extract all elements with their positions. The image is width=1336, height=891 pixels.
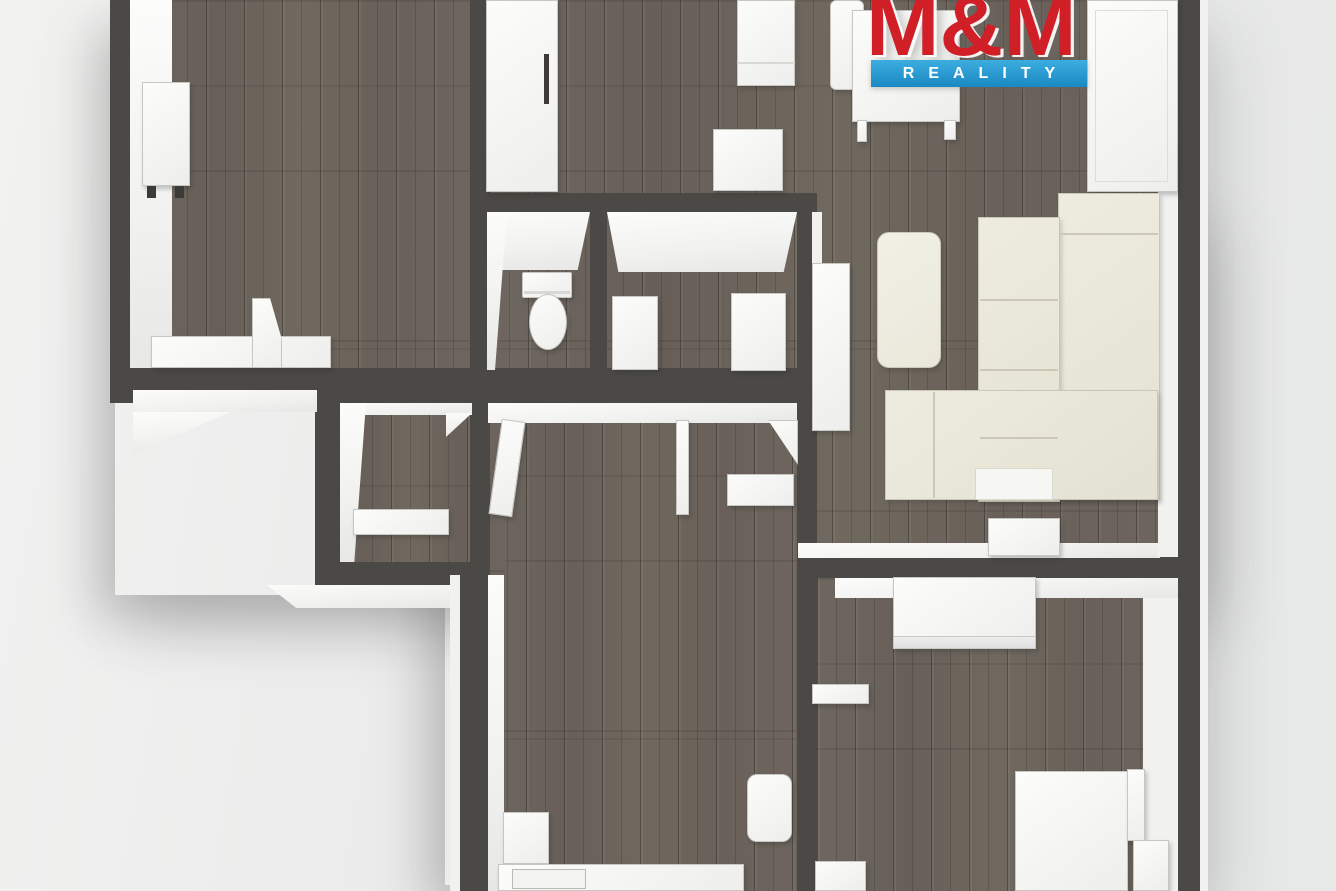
sofa-cushion-white [975,468,1053,500]
face-outer-southwest [133,390,317,412]
hall-chair [747,774,792,842]
wall-bathroom-north [470,193,815,212]
bathroom-vanity [612,296,658,370]
cabinet-tall [812,263,850,431]
desk [142,82,190,186]
bed-side-table [1133,840,1169,891]
wall-hall-east [797,390,817,891]
coffee-table [877,232,941,368]
sofa-cushion-line-1 [980,299,1058,301]
door-leaf-bathroom [676,420,689,515]
face-outer-hall-west [450,575,460,891]
hall-cabinet [503,812,549,864]
hall-shelf [727,474,794,506]
logo-title: M&M [866,0,1077,68]
bedroom-wardrobe-front [893,636,1036,649]
wall-hall-west [460,575,488,891]
closet-shelf [353,509,449,535]
desk-leg-left [147,186,156,198]
sofa-chaise-divider [933,392,935,498]
table-leg-right [944,120,956,140]
logo-subtitle: REALITY [871,60,1087,87]
sofa-cushion-line-3 [980,437,1058,439]
stove [512,869,586,889]
wall-closet-south [315,562,488,585]
realty-logo: M&M REALITY [866,0,1098,92]
sofa-cushion-line-2 [980,369,1058,371]
wall-topleft-west [110,0,130,392]
face-hall-north [488,403,797,423]
desk-leg-right [175,186,184,198]
face-bathroom-north [607,212,797,272]
stool [713,129,783,191]
nightstand [737,0,795,86]
face-outer-closet-south [250,585,460,608]
face-living-south [798,543,1160,558]
washing-machine [731,293,786,371]
wall-closet-west [315,392,340,585]
face-outer-east [1200,0,1208,891]
table-leg-left [857,120,867,142]
wall-living-south [797,557,1205,578]
nightstand-front-line [737,62,795,64]
sideboard-small [988,518,1060,556]
sideboard-topleft [151,336,331,368]
floor-plan-stage: M&M REALITY [0,0,1336,891]
bedroom-box [815,861,866,891]
bedroom-shelf [812,684,869,704]
bed [1015,771,1128,891]
wall-wc-bathroom-divider [590,212,607,372]
wardrobe-b-bevel [1095,10,1168,182]
face-hall-west [488,575,504,891]
sofa-armrest-line [1060,233,1158,235]
bed-edge [1127,769,1145,841]
wardrobe-a-handle [544,54,549,104]
toilet-bowl [529,294,567,350]
